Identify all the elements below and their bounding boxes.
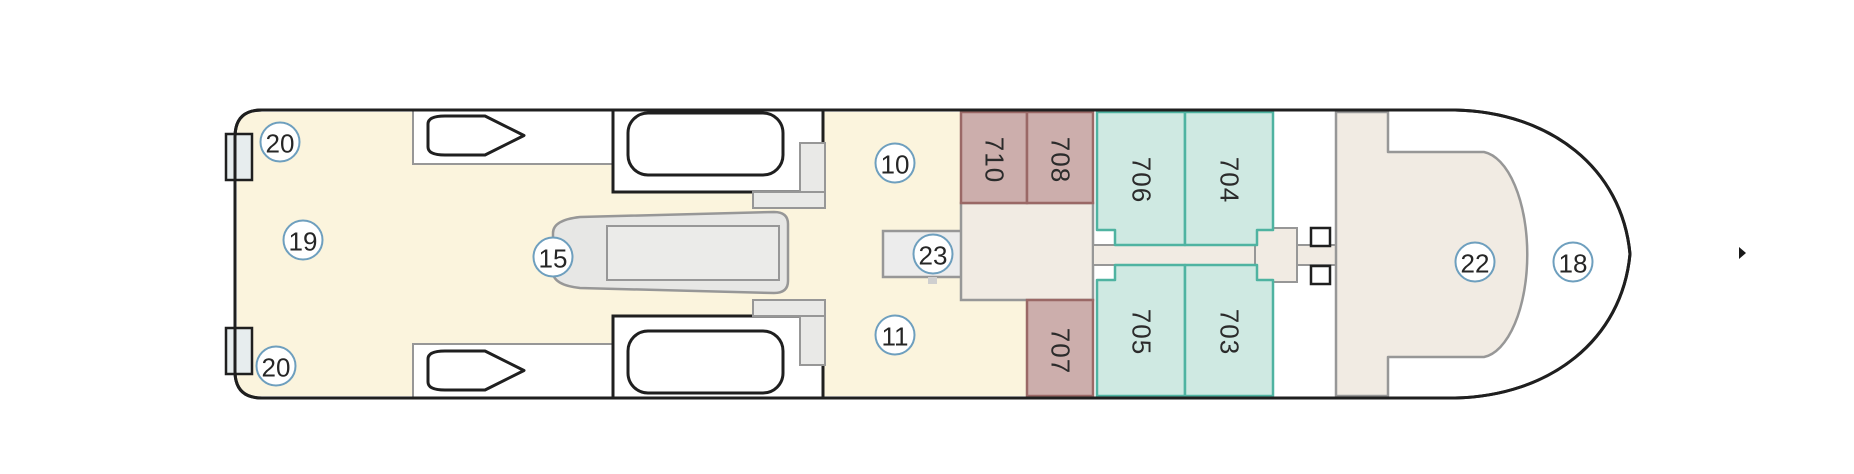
- info-box-23-tab: [928, 277, 937, 284]
- corridor-vestibule: [1255, 228, 1297, 282]
- marker-18[interactable]: 18: [1553, 242, 1594, 283]
- stern-platform-top: [226, 134, 252, 180]
- marker-20-top[interactable]: 20: [260, 122, 301, 163]
- cabin-708-label: 708: [1045, 137, 1076, 183]
- stair-landing-bottom-horizontal: [753, 300, 825, 316]
- stern-platform-bottom: [226, 328, 252, 374]
- marker-20-bottom[interactable]: 20: [256, 346, 297, 387]
- lifeboat-bottom: [628, 331, 783, 393]
- cabin-706-label: 706: [1126, 157, 1157, 203]
- cabin-704-label: 704: [1214, 157, 1245, 203]
- marker-19[interactable]: 19: [283, 220, 324, 261]
- marker-15[interactable]: 15: [533, 237, 574, 278]
- marker-23[interactable]: 23: [913, 234, 954, 275]
- stair-landing-top-vertical: [800, 143, 825, 192]
- stray-pointer-mark: [1739, 247, 1746, 259]
- marker-22[interactable]: 22: [1455, 242, 1496, 283]
- deck-plan-canvas: 20 19 20 15 10 23 11 22 18 710 708 706 7…: [0, 0, 1854, 474]
- cabin-710-label: 710: [979, 137, 1010, 183]
- marker-10[interactable]: 10: [875, 143, 916, 184]
- door-top: [1311, 228, 1330, 246]
- lifeboat-top: [628, 113, 783, 175]
- cabin-703-label: 703: [1214, 309, 1245, 355]
- marker-11[interactable]: 11: [875, 315, 916, 356]
- interior-lobby: [961, 203, 1093, 300]
- cabin-707-label: 707: [1045, 328, 1076, 374]
- stair-landing-top-horizontal: [753, 192, 825, 208]
- stair-landing-bottom-vertical: [800, 316, 825, 365]
- corridor: [1093, 245, 1340, 265]
- cabin-705-label: 705: [1126, 309, 1157, 355]
- funnel-inner: [607, 226, 779, 280]
- door-bottom: [1311, 266, 1330, 284]
